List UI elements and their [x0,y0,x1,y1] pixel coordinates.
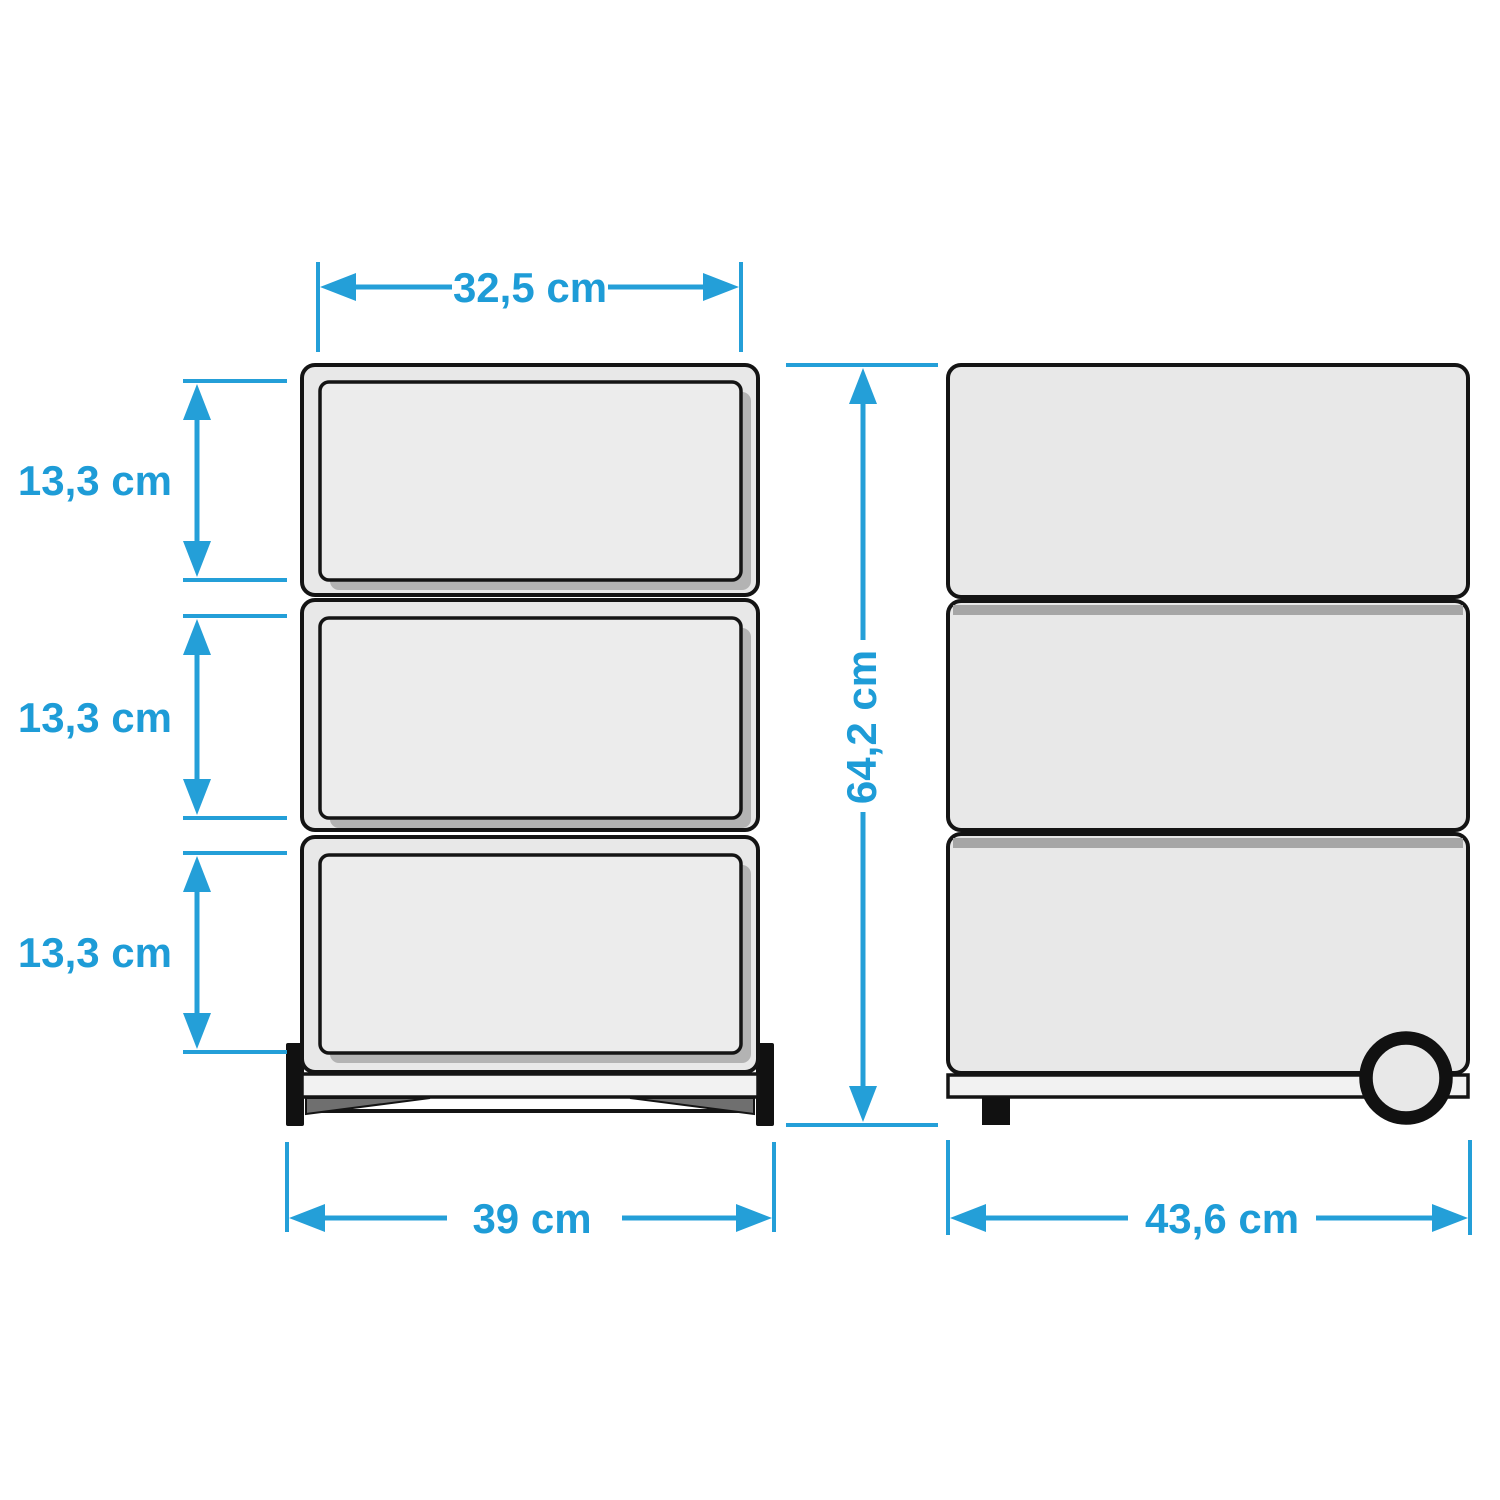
drawer-2-front [320,618,741,818]
dim-label-drawer-height-2: 13,3 cm [18,694,172,741]
side-panel-2 [948,601,1468,830]
front-drawer-module-1 [302,365,758,595]
front-plinth [302,1074,758,1097]
dim-label-overall-height: 64,2 cm [838,650,885,804]
arrowhead-left [950,1204,986,1232]
arrowhead-right [703,273,739,301]
arrowhead-down [849,1086,877,1122]
side-panel-1 [948,365,1468,597]
drawer-3-front [320,855,741,1053]
arrowhead-right [1432,1204,1468,1232]
dim-label-overall-depth: 43,6 cm [1145,1195,1299,1242]
dim-drawer-width: 32,5 cm [318,262,741,352]
side-view [948,365,1468,1125]
dim-overall-height: 64,2 cm [786,365,938,1125]
side-panel-2-gap-strip [953,605,1463,615]
front-drawer-module-3 [302,837,758,1072]
diagram-canvas: 32,5 cm 13,3 cm 13,3 cm 13,3 cm 39 cm [0,0,1500,1500]
dim-overall-width: 39 cm [287,1142,774,1242]
dim-drawer-height-2: 13,3 cm [18,616,287,818]
side-panel-2-body [948,601,1468,830]
dimension-diagram: 32,5 cm 13,3 cm 13,3 cm 13,3 cm 39 cm [0,0,1500,1500]
dim-label-drawer-width: 32,5 cm [453,264,607,311]
dim-drawer-height-3: 13,3 cm [18,853,287,1052]
front-view [286,365,774,1126]
drawer-1-front [320,382,741,580]
arrowhead-left [289,1204,325,1232]
side-panel-3-gap-strip [953,838,1463,848]
side-caster-wheel [1366,1038,1446,1118]
dim-label-drawer-height-1: 13,3 cm [18,457,172,504]
side-front-foot [982,1097,1010,1125]
dim-label-drawer-height-3: 13,3 cm [18,929,172,976]
dim-label-overall-width: 39 cm [472,1195,591,1242]
arrowhead-left [320,273,356,301]
dim-drawer-height-1: 13,3 cm [18,381,287,580]
side-panel-1-body [948,365,1468,597]
dim-overall-depth: 43,6 cm [948,1140,1470,1242]
arrowhead-right [736,1204,772,1232]
front-drawer-module-2 [302,600,758,830]
